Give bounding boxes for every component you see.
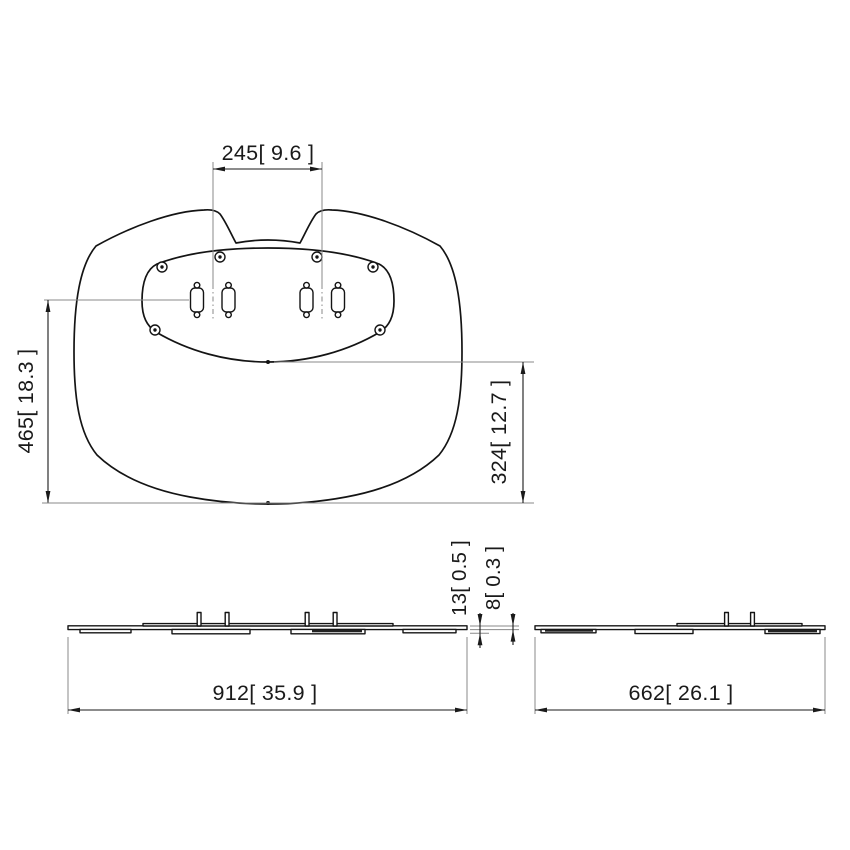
front-view: 912[ 35.9 ]	[68, 613, 467, 715]
locating-pin	[225, 613, 229, 627]
screw-hole	[215, 252, 225, 262]
screw-hole	[368, 262, 378, 272]
center-mark	[266, 360, 270, 364]
screw-hole	[375, 325, 385, 335]
gasket-strip	[312, 630, 362, 632]
dimension-label: 324[ 12.7 ]	[487, 380, 511, 485]
mounting-plate-outline	[142, 248, 394, 362]
locating-pin	[333, 613, 337, 627]
locating-pin	[751, 613, 755, 627]
dimension-drawing: 245[ 9.6 ] 465[ 18.3 ] 324[ 12.7 ]	[0, 0, 850, 850]
dimension-label: 912[ 35.9 ]	[213, 681, 318, 705]
dim-width-front: 912[ 35.9 ]	[68, 637, 467, 714]
plate-lip-profile	[143, 624, 393, 626]
foot-profile	[172, 629, 250, 633]
side-view: 662[ 26.1 ]	[535, 613, 825, 715]
dimension-label: 662[ 26.1 ]	[629, 681, 734, 705]
locating-pin	[725, 613, 729, 627]
gasket-strip	[545, 630, 593, 632]
drawing-canvas: 245[ 9.6 ] 465[ 18.3 ] 324[ 12.7 ]	[0, 0, 850, 850]
top-view: 245[ 9.6 ] 465[ 18.3 ] 324[ 12.7 ]	[14, 141, 534, 505]
dimension-label: 245[ 9.6 ]	[222, 141, 315, 165]
foot-profile	[80, 629, 131, 632]
dim-width-side: 662[ 26.1 ]	[535, 637, 825, 714]
thickness-dims: 13[ 0.5 ] 8[ 0.3 ]	[448, 540, 519, 648]
foot-profile	[635, 629, 693, 633]
screw-hole	[157, 262, 167, 272]
foot-profile	[403, 629, 456, 632]
screw-hole	[150, 325, 160, 335]
gasket-strip	[768, 630, 817, 632]
plate-lip-profile	[677, 624, 802, 626]
dimension-label: 13[ 0.5 ]	[448, 540, 471, 616]
screw-hole	[312, 252, 322, 262]
locating-pin	[197, 613, 201, 627]
locating-pin	[305, 613, 309, 627]
dim-height-plate: 8[ 0.3 ]	[482, 546, 513, 645]
dimension-label: 465[ 18.3 ]	[14, 349, 38, 454]
dimension-label: 8[ 0.3 ]	[482, 546, 505, 610]
